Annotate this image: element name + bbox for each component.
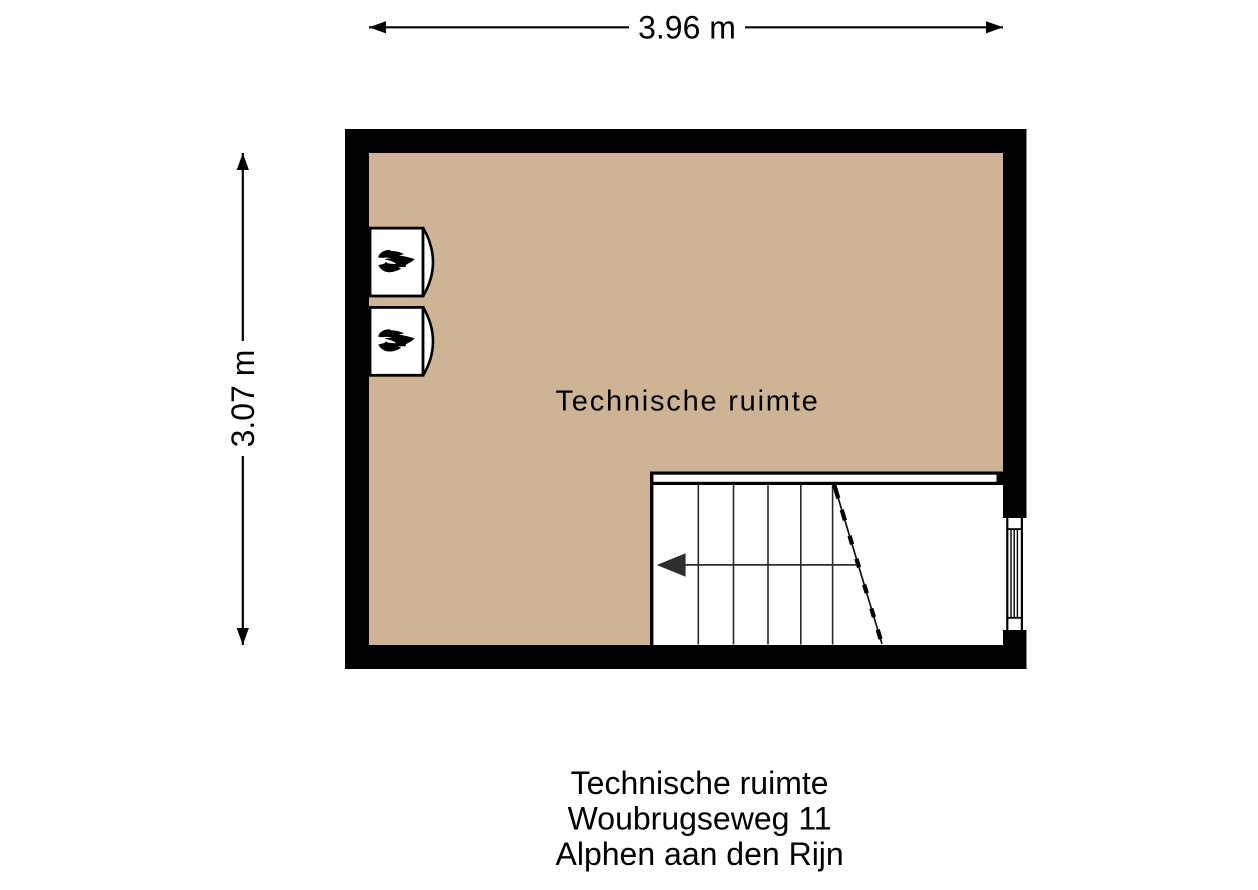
svg-text:Alphen aan den Rijn: Alphen aan den Rijn — [555, 836, 843, 872]
svg-text:3.96 m: 3.96 m — [638, 10, 736, 46]
svg-text:3.07 m: 3.07 m — [225, 350, 261, 448]
svg-text:Technische ruimte: Technische ruimte — [571, 765, 829, 801]
svg-text:Technische ruimte: Technische ruimte — [556, 385, 820, 417]
svg-text:Woubrugseweg 11: Woubrugseweg 11 — [568, 801, 832, 837]
